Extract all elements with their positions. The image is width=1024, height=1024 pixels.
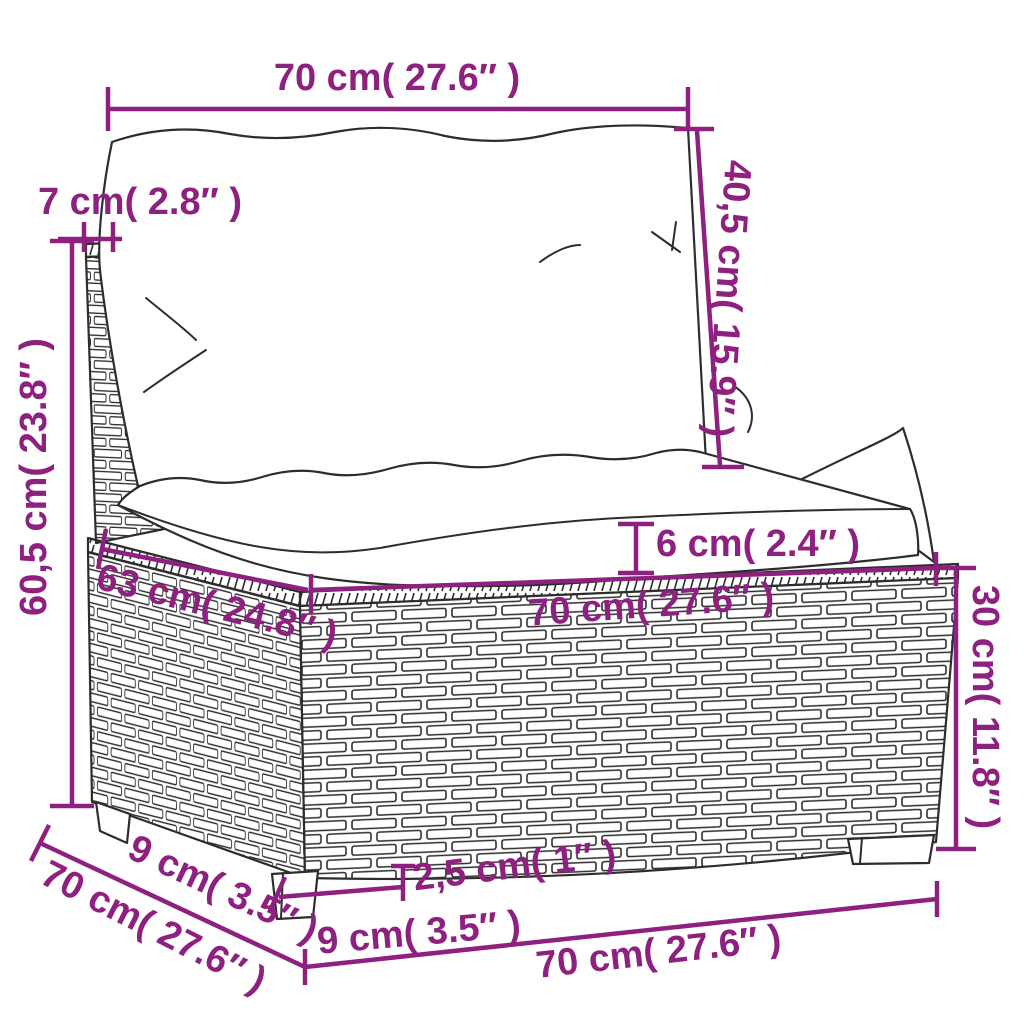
back-cushion-width-label: 70 cm( 27.6″ ) [274, 57, 520, 99]
cushion-thickness-label: 6 cm( 2.4″ ) [656, 523, 860, 565]
dimension-diagram: 70 cm( 27.6″ ) 7 cm( 2.8″ ) 60,5 cm( 23.… [0, 0, 1024, 1024]
base-height-label: 30 cm( 11.8″ ) [964, 585, 1006, 829]
back-cushion [99, 125, 706, 486]
back-panel-depth-label: 7 cm( 2.8″ ) [38, 181, 242, 223]
overall-height-label: 60,5 cm( 23.8″ ) [13, 338, 55, 616]
dim-tick [31, 825, 49, 861]
sofa-diagram-canvas: 70 cm( 27.6″ ) 7 cm( 2.8″ ) 60,5 cm( 23.… [0, 0, 1024, 1024]
